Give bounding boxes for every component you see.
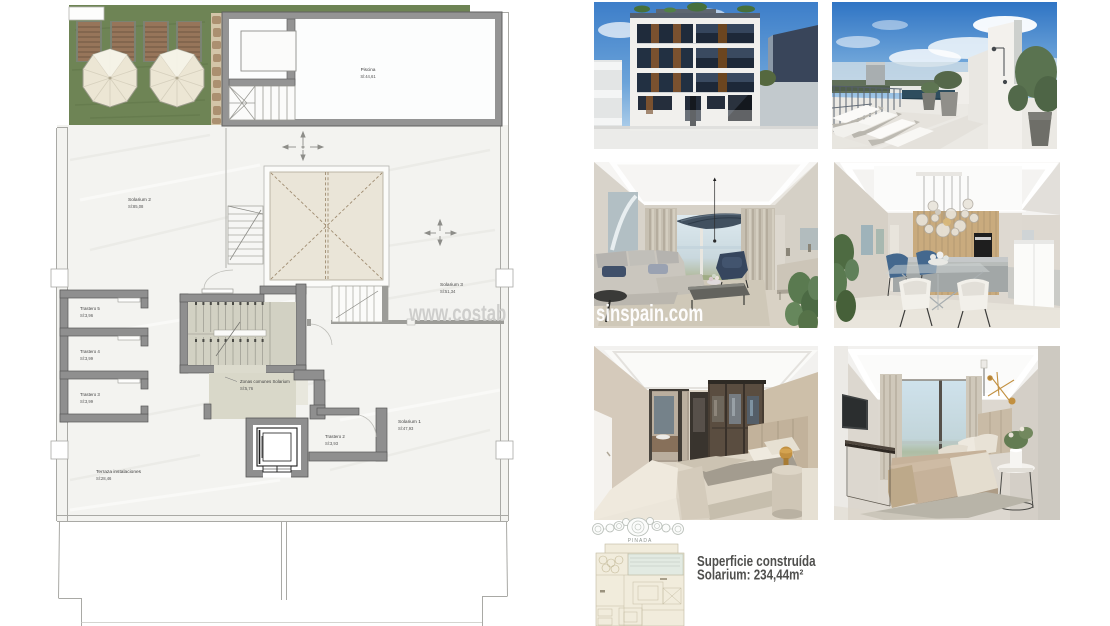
- svg-text:Sl:85,08: Sl:85,08: [128, 204, 144, 209]
- svg-text:Sl:3,96: Sl:3,96: [80, 313, 94, 318]
- svg-text:Sl:3,93: Sl:3,93: [325, 441, 339, 446]
- svg-text:PINADA: PINADA: [628, 538, 653, 544]
- svg-text:Solarium 2: Solarium 2: [128, 197, 151, 203]
- svg-text:Terraza instalaciones: Terraza instalaciones: [96, 469, 142, 475]
- svg-text:Sl:5,76: Sl:5,76: [240, 386, 254, 391]
- svg-text:Solarium: 234,44m²: Solarium: 234,44m²: [697, 566, 804, 583]
- svg-text:Sl:3,99: Sl:3,99: [80, 356, 94, 361]
- svg-text:Sl:51,34: Sl:51,34: [440, 289, 456, 294]
- svg-text:Solarium 3: Solarium 3: [440, 282, 463, 288]
- svg-text:Sl:47,93: Sl:47,93: [398, 426, 414, 431]
- svg-text:Piscina: Piscina: [361, 67, 376, 72]
- svg-text:Sl:44,61: Sl:44,61: [360, 74, 376, 79]
- svg-text:Zonas comunes Solarium: Zonas comunes Solarium: [240, 379, 290, 384]
- svg-text:www.costab: www.costab: [408, 302, 506, 327]
- svg-text:sinspain.com: sinspain.com: [596, 302, 703, 327]
- svg-text:Sl:3,99: Sl:3,99: [80, 399, 94, 404]
- svg-text:Trastero 3: Trastero 3: [80, 392, 100, 397]
- svg-text:Sl:28,46: Sl:28,46: [96, 476, 112, 481]
- svg-text:Trastero 4: Trastero 4: [80, 349, 100, 354]
- svg-text:Solarium 1: Solarium 1: [398, 419, 421, 425]
- svg-text:Trastero 2: Trastero 2: [325, 434, 345, 439]
- svg-text:Trastero 5: Trastero 5: [80, 306, 100, 311]
